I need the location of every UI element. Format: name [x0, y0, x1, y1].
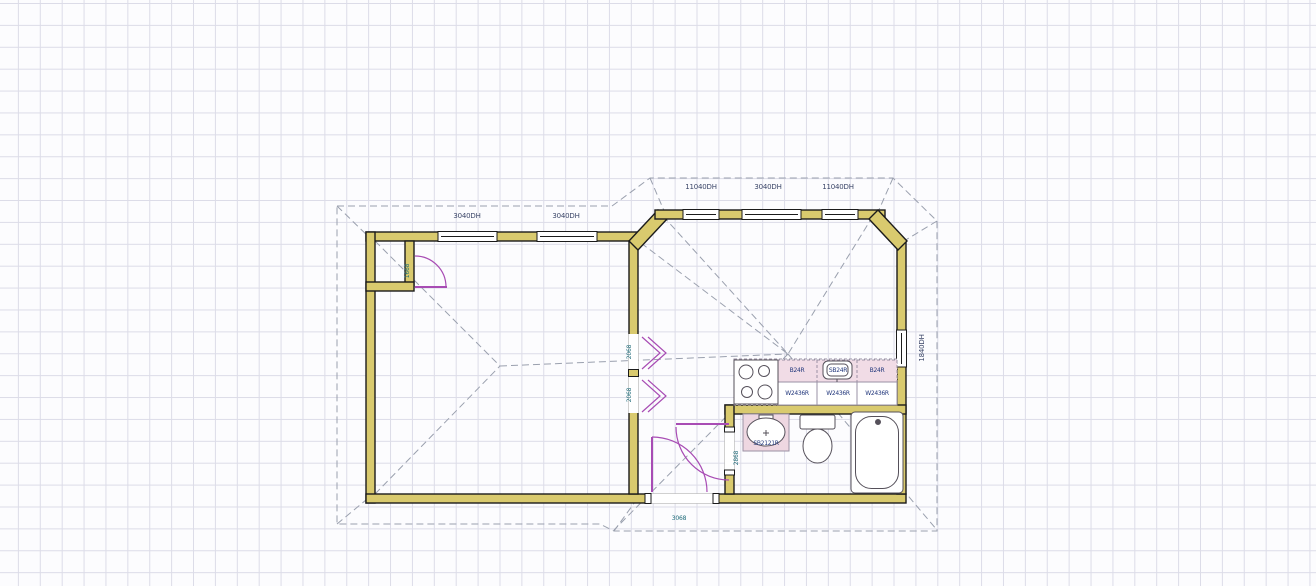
cabinet-label-wall-3: W2436R: [857, 390, 897, 398]
window-bay-3[interactable]: [822, 210, 858, 220]
door-label-bifold-bottom: 2068: [626, 377, 634, 413]
window-label-left-1: 3040DH: [445, 212, 489, 220]
window-bay-2[interactable]: [742, 210, 801, 220]
closet-door[interactable]: [415, 256, 447, 287]
window-label-bay-2: 3040DH: [746, 183, 790, 191]
cabinet-label-wall-2: W2436R: [818, 390, 858, 398]
door-label-front: 3068: [657, 515, 701, 523]
window-left-1[interactable]: [438, 232, 497, 242]
wall-bottom[interactable]: [366, 494, 906, 503]
kitchen[interactable]: [734, 359, 897, 405]
window-right[interactable]: [897, 330, 907, 367]
door-label-bifold-top: 2068: [626, 334, 634, 370]
window-label-bay-1: 11040DH: [679, 183, 723, 191]
bifold-door-top[interactable]: [642, 337, 666, 369]
bathtub[interactable]: [851, 412, 903, 493]
floor-plan: [0, 0, 1316, 586]
door-openings: [629, 334, 735, 504]
bifold-door-bottom[interactable]: [642, 380, 666, 412]
window-left-2[interactable]: [537, 232, 597, 242]
wall-left[interactable]: [366, 232, 375, 503]
cabinet-label-base-2: SB24R: [818, 367, 858, 375]
window-label-bay-3: 11040DH: [816, 183, 860, 191]
door-label-bathroom: 2868: [733, 440, 741, 476]
cabinet-label-base-3: B24R: [857, 367, 897, 375]
bathroom[interactable]: [743, 412, 903, 493]
doors[interactable]: [415, 256, 729, 492]
toilet[interactable]: [800, 415, 835, 463]
cabinet-label-base-1: B24R: [777, 367, 817, 375]
window-label-right: 1840DH: [918, 330, 926, 366]
bathroom-door[interactable]: [676, 424, 729, 480]
drawing-canvas[interactable]: 3040DH 3040DH 11040DH 3040DH 11040DH 184…: [0, 0, 1316, 586]
cabinet-label-wall-1: W2436R: [777, 390, 817, 398]
cabinet-label-vanity: SB2121R: [746, 440, 786, 448]
window-label-left-2: 3040DH: [544, 212, 588, 220]
wall-bay-chamfer-right[interactable]: [869, 210, 907, 250]
window-bay-1[interactable]: [683, 210, 719, 220]
cooktop[interactable]: [734, 360, 778, 404]
door-label-closet: 1668: [404, 253, 412, 289]
